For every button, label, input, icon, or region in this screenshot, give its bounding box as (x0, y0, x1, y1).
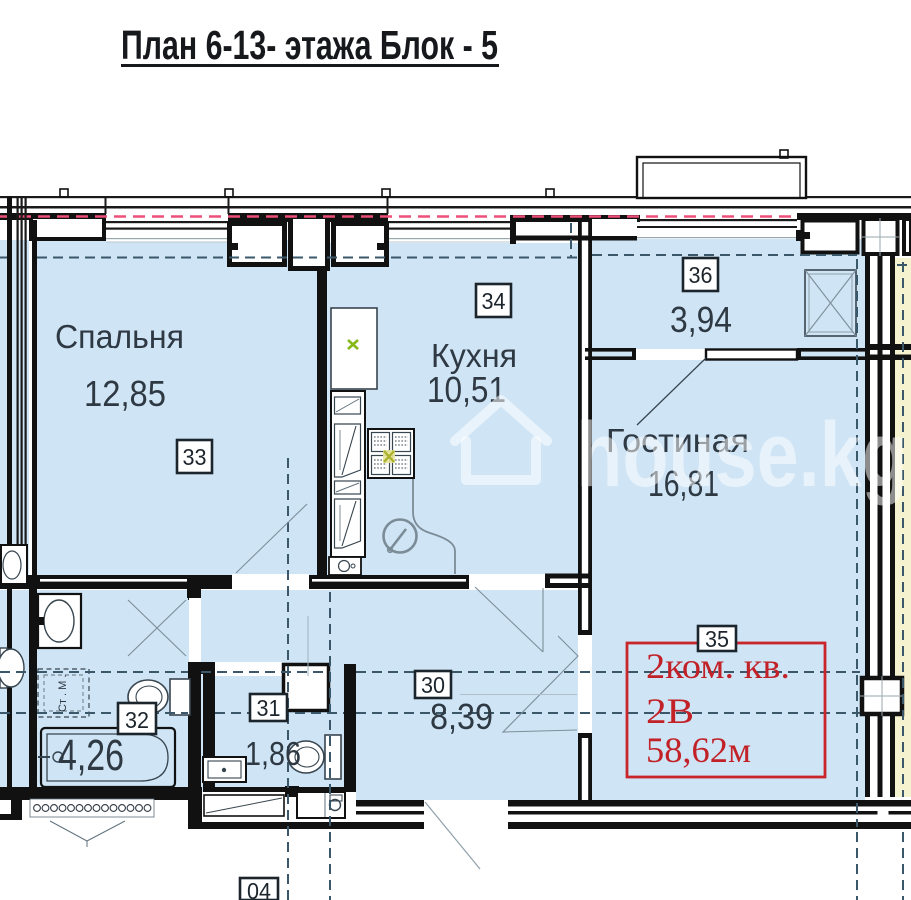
svg-text:3,94: 3,94 (670, 299, 732, 340)
svg-text:1,86: 1,86 (245, 735, 301, 772)
svg-text:04: 04 (247, 878, 271, 900)
svg-text:Ст . М .: Ст . М . (57, 675, 69, 712)
svg-text:32: 32 (125, 707, 149, 733)
svg-text:30: 30 (421, 672, 445, 698)
svg-text:house.kg: house.kg (576, 404, 908, 506)
svg-text:2В: 2В (646, 691, 694, 731)
svg-text:36: 36 (689, 262, 713, 288)
svg-text:33: 33 (183, 444, 207, 470)
svg-text:34: 34 (482, 288, 506, 314)
svg-text:2ком. кв.: 2ком. кв. (646, 646, 790, 686)
svg-text:План 6-13- этажа Блок - 5: План 6-13- этажа Блок - 5 (121, 22, 498, 68)
svg-text:12,85: 12,85 (84, 373, 166, 414)
svg-text:4,26: 4,26 (58, 731, 124, 780)
svg-text:Спальня: Спальня (55, 318, 184, 355)
svg-text:58,62м: 58,62м (646, 730, 751, 770)
svg-text:8,39: 8,39 (430, 696, 493, 737)
svg-text:31: 31 (257, 695, 281, 721)
